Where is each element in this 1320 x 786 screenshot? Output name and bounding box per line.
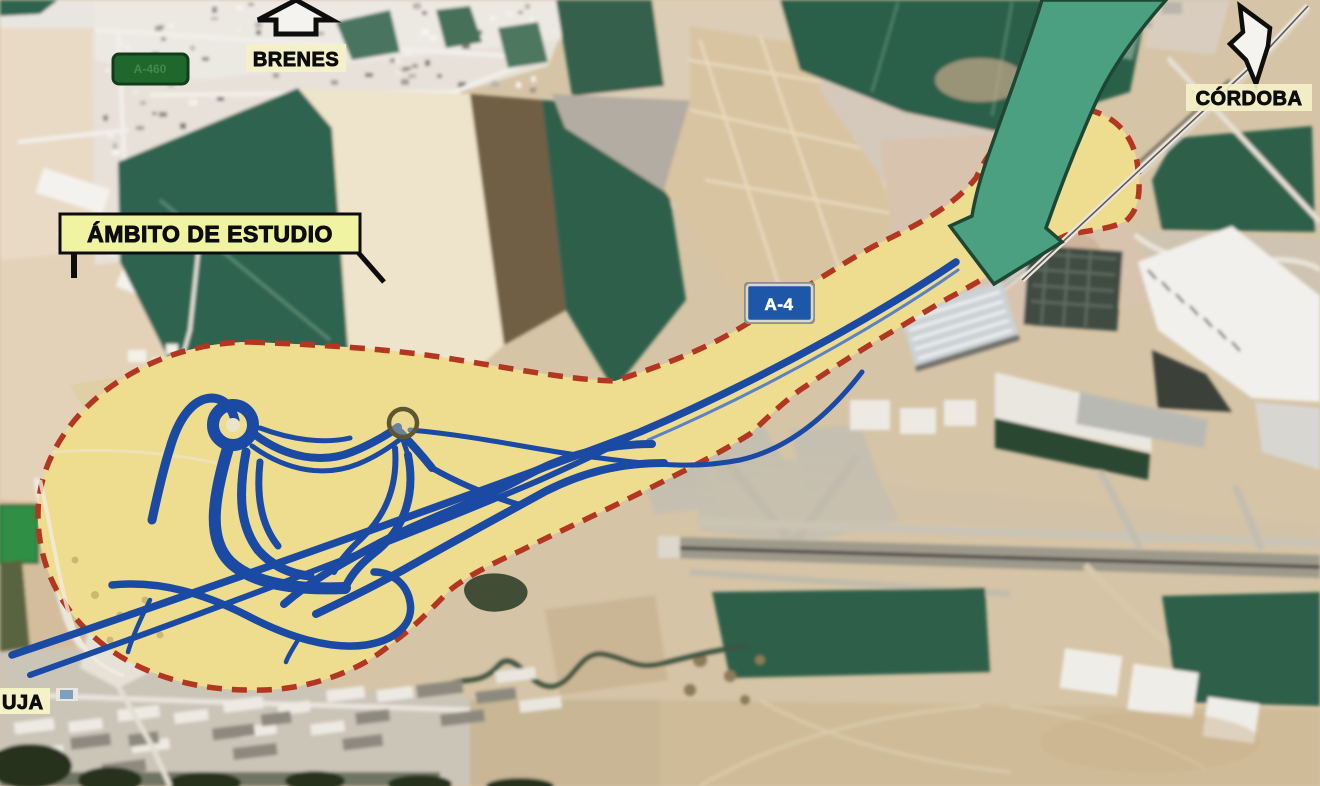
svg-text:BRENES: BRENES (253, 49, 339, 71)
svg-text:CÓRDOBA: CÓRDOBA (1196, 86, 1303, 110)
svg-text:A-4: A-4 (765, 295, 794, 314)
svg-text:A-460: A-460 (134, 62, 167, 76)
svg-text:ÁMBITO DE ESTUDIO: ÁMBITO DE ESTUDIO (87, 220, 333, 247)
svg-text:UJA: UJA (2, 692, 44, 714)
